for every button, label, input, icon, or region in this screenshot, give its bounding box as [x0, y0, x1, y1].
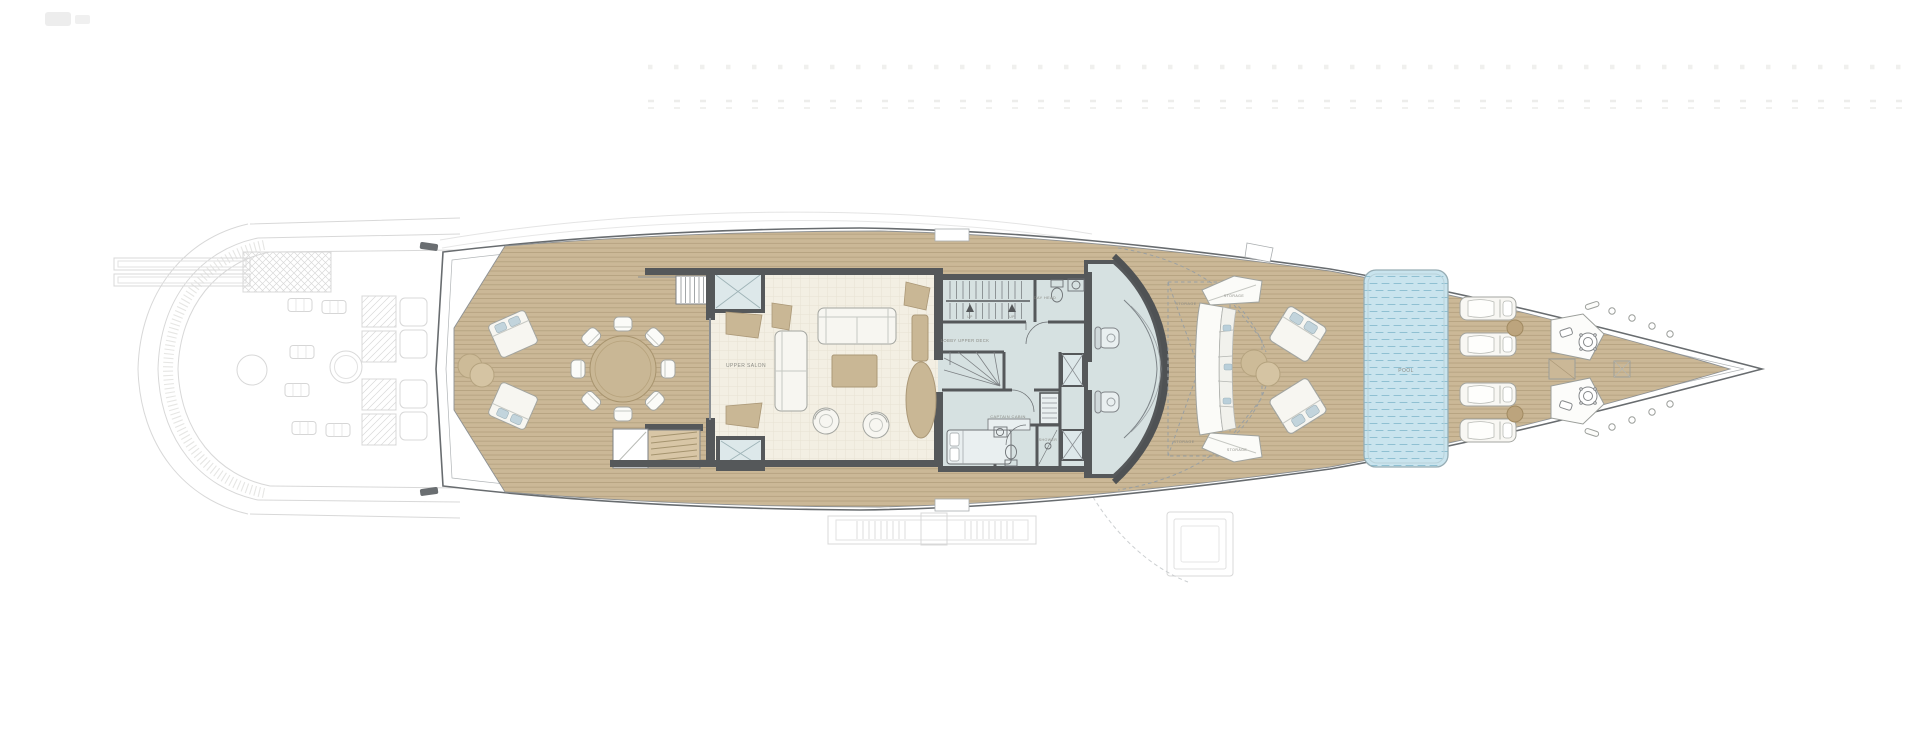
ghost-corner-mark: [45, 12, 90, 26]
entry-sideboard-bottom: [726, 403, 762, 428]
salon-chaise: [775, 331, 807, 411]
label-lobby: LOBBY UPPER DECK: [941, 338, 990, 343]
label-storage-3: STORAGE: [1224, 294, 1245, 298]
label-shower: SHOWER: [1039, 438, 1058, 442]
yacht-upper-deck-plan: UPPER SALON LOBBY UPPER DECK DAY HEAD CA…: [0, 0, 1920, 740]
salon-coffee-table: [832, 355, 877, 387]
label-storage-2: STORAGE: [1173, 440, 1194, 444]
sun-lounger-4: [1460, 419, 1516, 442]
label-pool: POOL: [1398, 368, 1414, 374]
entry-sideboard-top: [726, 312, 762, 338]
label-storage-1: STORAGE: [1175, 302, 1196, 306]
salon-sliding-door: [709, 318, 711, 420]
helm-seat-1: [1095, 327, 1119, 349]
ghost-hatched-walkway: [243, 252, 331, 292]
label-up-1: UP: [967, 315, 973, 319]
sun-lounger-2: [1460, 333, 1516, 356]
sun-lounger-3: [1460, 383, 1516, 406]
ghost-lower-deck-stairs: [828, 513, 1036, 545]
ghost-swim-platform: [1167, 512, 1233, 576]
bow-sofa: [1196, 303, 1237, 435]
label-day-head: DAY HEAD: [1034, 296, 1056, 300]
label-captain-cabin: CAPTAIN CABIN: [990, 414, 1026, 419]
deck-plan-svg: UPPER SALON LOBBY UPPER DECK DAY HEAD CA…: [0, 0, 1920, 740]
label-up-2: UP: [1009, 315, 1015, 319]
label-upper-salon: UPPER SALON: [726, 363, 766, 369]
salon-corner-cabinet: [772, 303, 792, 330]
salon-side-console: [912, 315, 928, 361]
stern-gate-port: [420, 242, 439, 251]
side-gate-port: [935, 229, 969, 241]
side-gate-starboard: [935, 499, 969, 511]
ghost-aft-furniture: [237, 296, 427, 445]
ghost-dotted-rows: [648, 67, 1912, 108]
stern-gate-starboard: [420, 487, 439, 496]
salon-sofa: [818, 308, 896, 344]
sun-lounger-1: [1460, 297, 1516, 320]
lounger-side-table-1: [1507, 320, 1523, 336]
salon-oval-console: [906, 362, 936, 438]
helm-seat-2: [1095, 391, 1119, 413]
label-storage-4: STORAGE: [1227, 448, 1248, 452]
captain-wardrobe: [1040, 393, 1059, 424]
skylight-aft-top: [711, 270, 765, 313]
lounger-side-table-2: [1507, 406, 1523, 422]
